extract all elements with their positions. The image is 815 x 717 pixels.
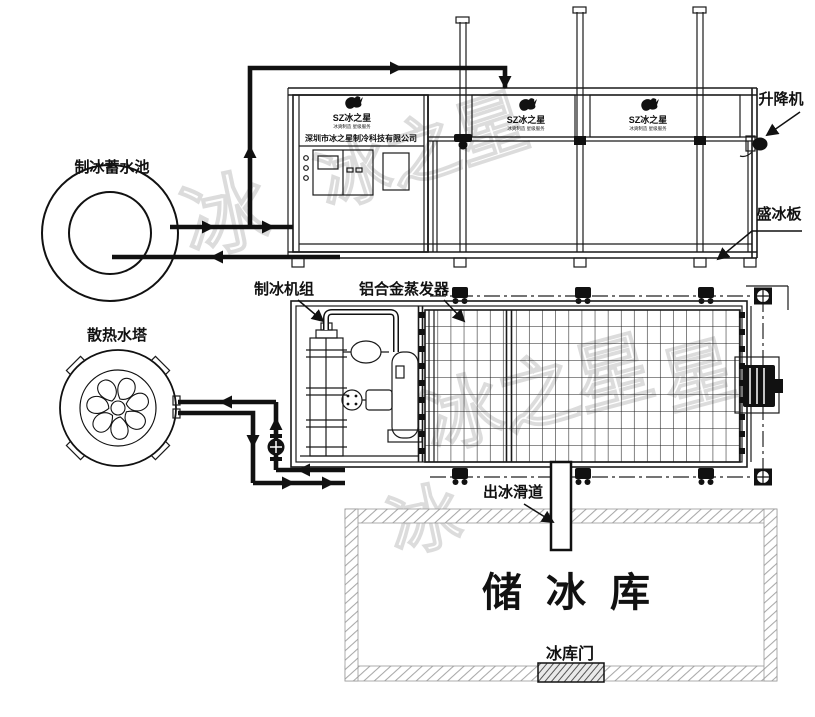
label-lift: 升降机 (758, 90, 803, 108)
evaporator-grid (419, 310, 745, 462)
logo-icon (345, 96, 363, 109)
logo-icon (641, 98, 659, 111)
label-ice-plate: 盛冰板 (756, 205, 802, 223)
storage-wall-left (345, 509, 358, 681)
label-ice-slide: 出冰滑道 (483, 483, 543, 501)
logo-text: SZ冰之星 (507, 114, 546, 125)
label-cooling-tower: 散热水塔 (87, 326, 148, 344)
logo-slogan: 冰爽制造 星级服务 (629, 125, 667, 132)
corner-pulley-icon (746, 286, 788, 310)
label-storage: 储冰库 (482, 571, 674, 615)
logo-slogan: 冰爽制造 星级服务 (507, 125, 545, 132)
cable-fitting-icon (694, 136, 706, 145)
logo-text: SZ冰之星 (629, 114, 668, 125)
logo-icon (519, 98, 537, 111)
plan-view (291, 286, 788, 486)
logo-text: SZ冰之星 (333, 112, 372, 123)
cable-fitting-icon (574, 136, 586, 145)
cooling-tower (60, 350, 180, 466)
diagram-canvas: 冰之星 冰 冰之星 星 冰 (0, 0, 815, 717)
storage-door (538, 663, 604, 682)
label-evaporator: 铝合金蒸发器 (359, 280, 450, 298)
diagram-page: 冰之星 冰 冰之星 星 冰 (0, 0, 815, 717)
logo-slogan: 冰爽制造 星级服务 (333, 123, 371, 130)
label-machine-unit: 制冰机组 (254, 280, 314, 298)
storage-wall-right (764, 509, 777, 681)
ice-slide (551, 462, 571, 550)
watermark-text: 冰之星 (308, 81, 538, 224)
label-storage-door: 冰库门 (546, 644, 594, 663)
refrigeration-unit (300, 312, 422, 456)
label-pool: 制冰蓄水池 (74, 158, 149, 176)
water-pool (42, 165, 178, 301)
machine-feet (292, 258, 756, 267)
hoist-icon (740, 136, 768, 157)
corner-pulley-icon (754, 469, 772, 486)
company-name: 深圳市冰之星制冷科技有限公司 (305, 133, 417, 143)
